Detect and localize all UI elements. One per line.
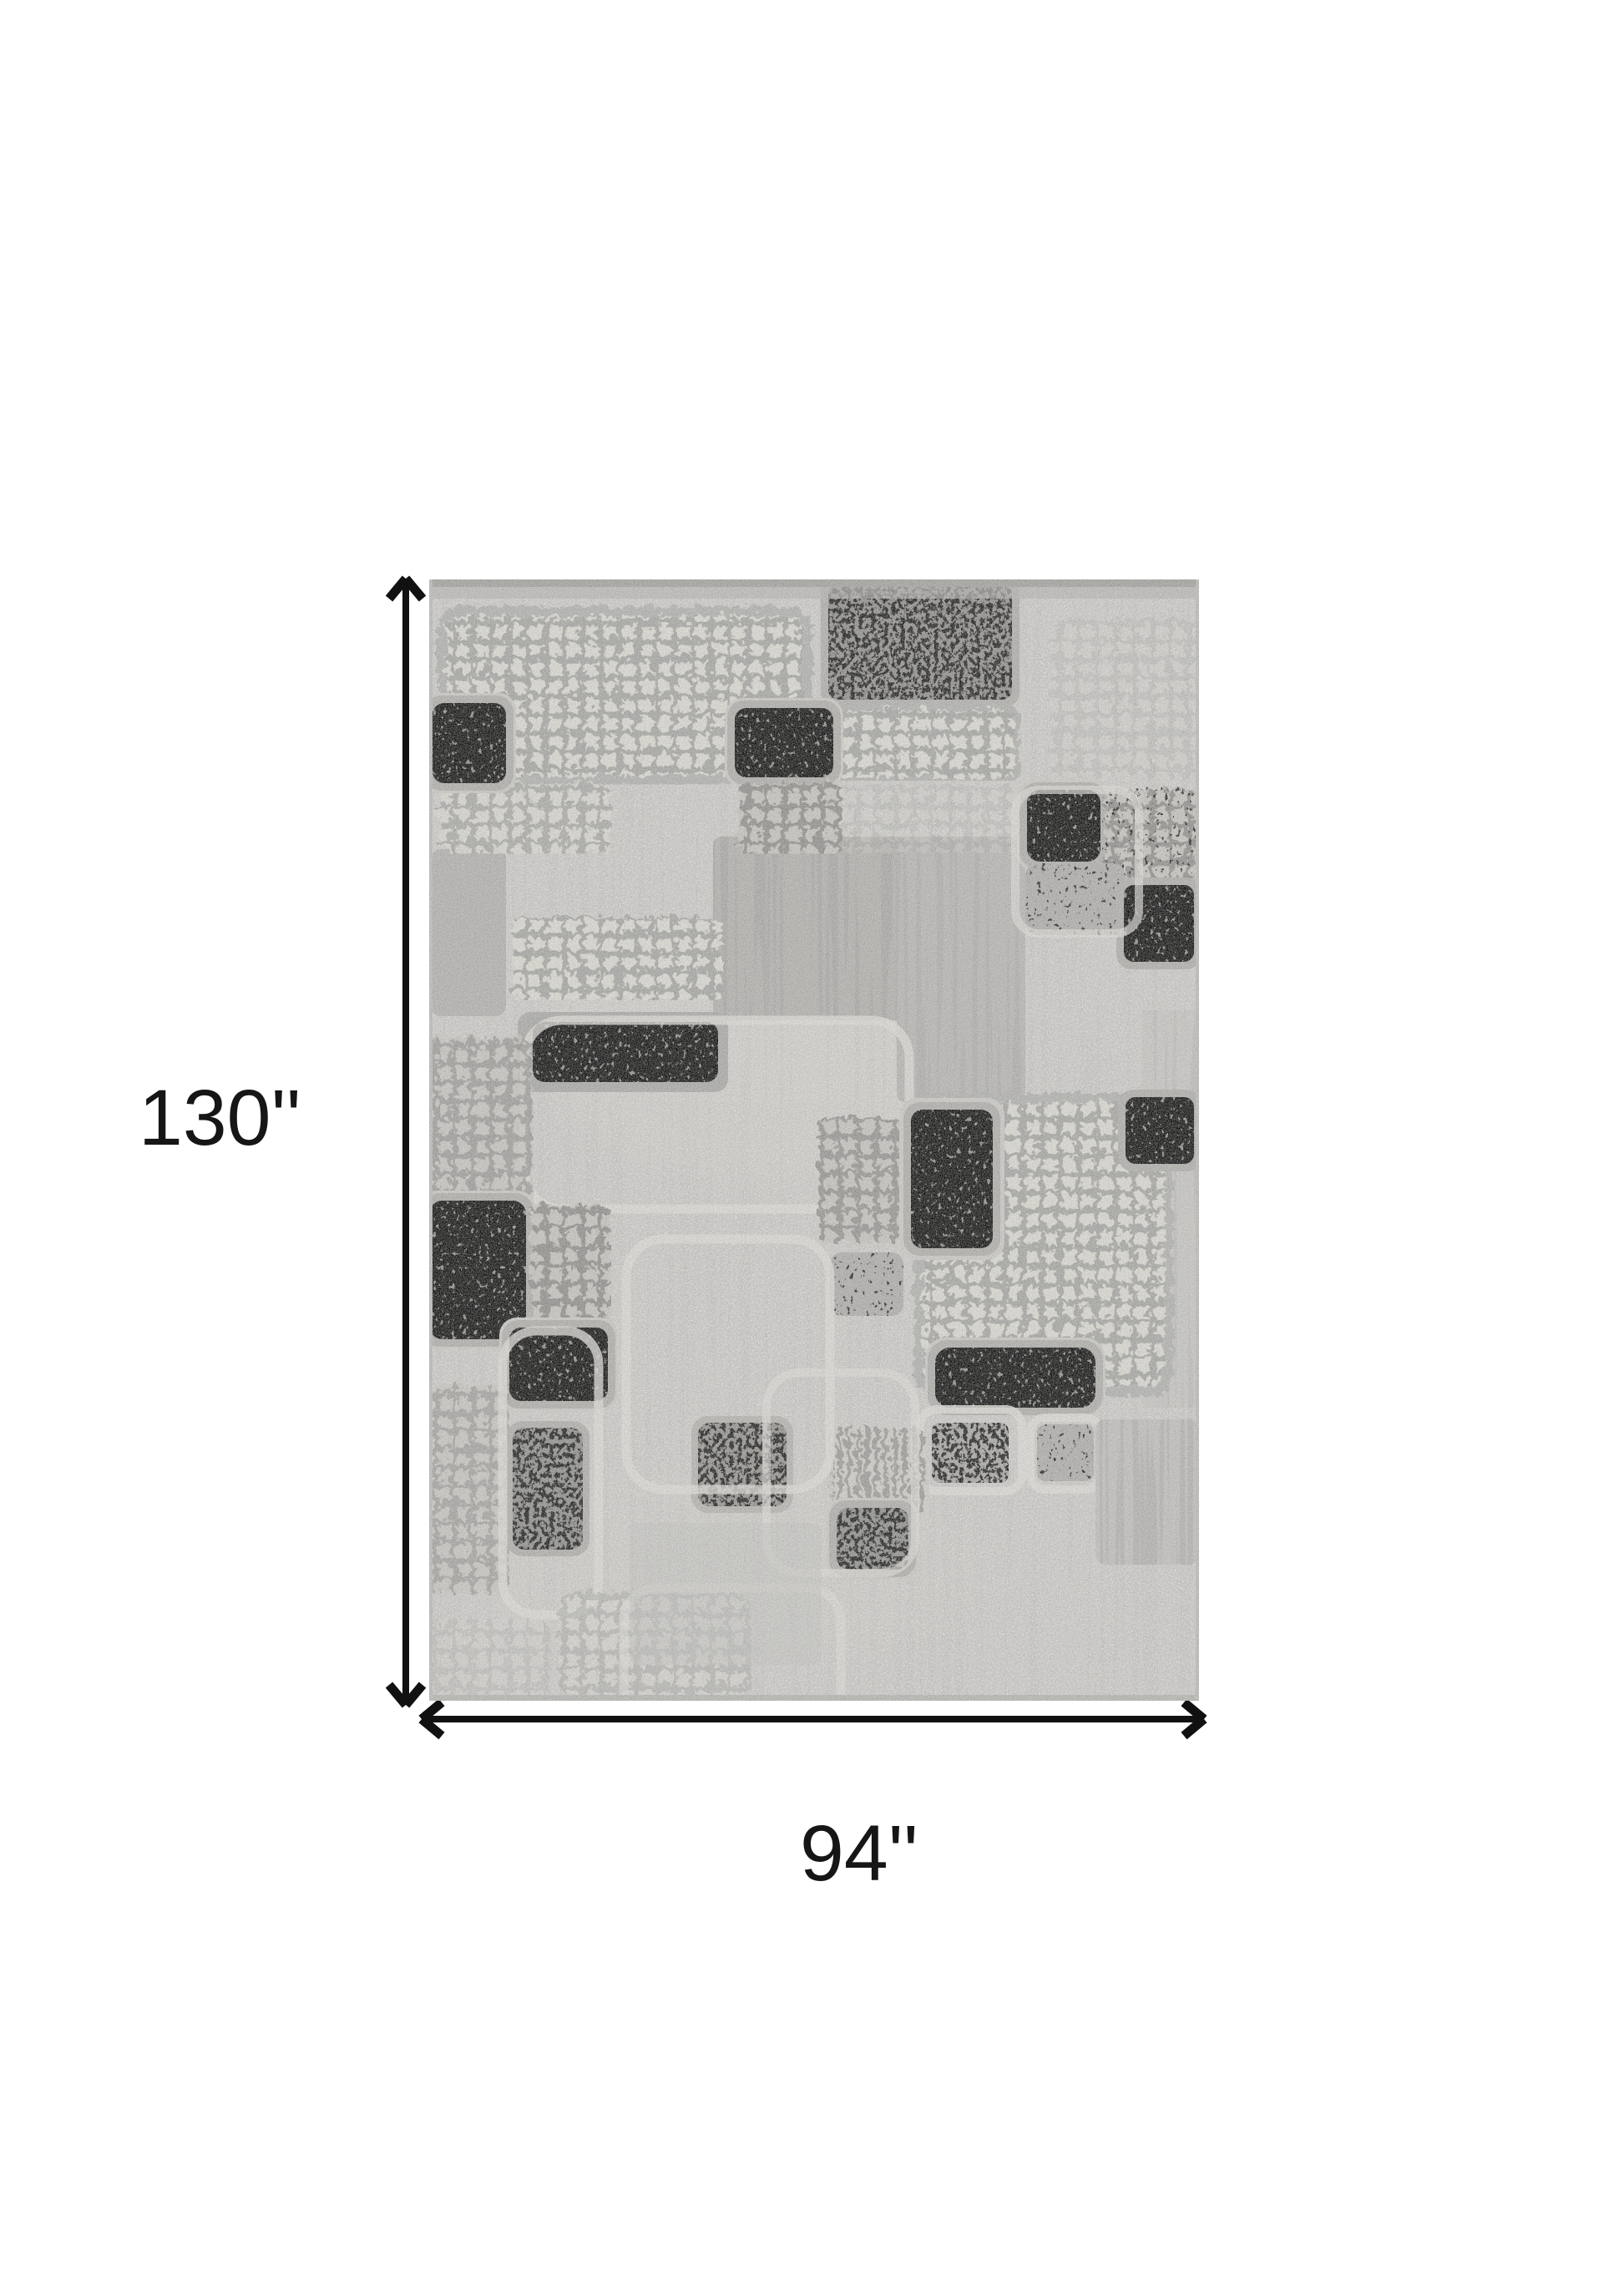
svg-text:130'': 130'' (139, 1074, 301, 1162)
svg-text:94'': 94'' (800, 1809, 918, 1898)
